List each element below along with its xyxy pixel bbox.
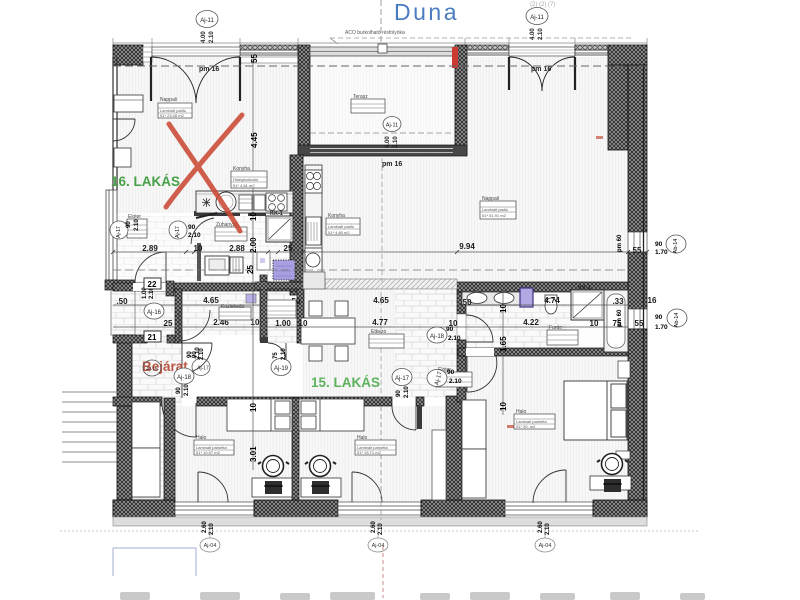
svg-text:2.10: 2.10 (393, 136, 399, 148)
svg-text:4.77: 4.77 (372, 318, 388, 327)
svg-text:51* 51.91 m2: 51* 51.91 m2 (482, 213, 507, 218)
svg-text:Aj-18: Aj-18 (430, 334, 445, 340)
svg-text:55: 55 (250, 54, 259, 63)
svg-text:2.88: 2.88 (229, 244, 245, 253)
svg-text:Halo: Halo (516, 409, 527, 415)
svg-text:16: 16 (648, 296, 657, 305)
svg-text:2.10: 2.10 (545, 523, 551, 535)
svg-text:Aj-17: Aj-17 (395, 376, 410, 382)
svg-text:Halo: Halo (357, 435, 368, 441)
svg-text:Aj-18: Aj-18 (177, 375, 192, 381)
svg-text:51* 20. m2: 51* 20. m2 (516, 424, 536, 429)
svg-text:51* 4.61 m2: 51* 4.61 m2 (233, 183, 255, 188)
svg-text:Aj-04: Aj-04 (372, 543, 385, 549)
svg-text:90: 90 (447, 369, 455, 376)
svg-text:22: 22 (148, 280, 157, 289)
svg-text:Konyha: Konyha (233, 166, 250, 172)
svg-text:KK-1: KK-1 (270, 211, 283, 217)
svg-text:Nappali: Nappali (482, 196, 499, 202)
svg-text:2.10: 2.10 (378, 523, 384, 535)
svg-text:75: 75 (273, 352, 279, 359)
svg-text:2.89: 2.89 (142, 244, 158, 253)
svg-text:pm 16: pm 16 (531, 66, 551, 73)
svg-text:90: 90 (396, 390, 402, 397)
svg-text:2.10: 2.10 (134, 219, 140, 231)
svg-text:4.22: 4.22 (523, 318, 539, 327)
svg-text:pm 60: pm 60 (617, 309, 623, 327)
svg-text:2.10: 2.10 (404, 386, 410, 398)
svg-text:55: 55 (635, 319, 644, 328)
svg-text:10: 10 (194, 244, 203, 253)
svg-text:Aj-17: Aj-17 (197, 366, 209, 372)
svg-text:21: 21 (148, 333, 157, 342)
svg-text:Halo: Halo (196, 435, 207, 441)
svg-text:ACO burkolható résfolyóka: ACO burkolható résfolyóka (345, 30, 405, 36)
svg-text:Aj-04: Aj-04 (204, 543, 217, 549)
svg-text:4.65: 4.65 (203, 296, 219, 305)
svg-text:(2) (2) (7): (2) (2) (7) (530, 2, 555, 8)
svg-text:1.70: 1.70 (655, 324, 668, 331)
svg-text:10: 10 (249, 403, 258, 412)
svg-text:2.60: 2.60 (202, 521, 208, 533)
svg-text:4.45: 4.45 (250, 132, 259, 148)
svg-text:2.00: 2.00 (249, 237, 258, 253)
svg-text:1.00: 1.00 (275, 319, 291, 328)
svg-text:Aj-19: Aj-19 (274, 366, 289, 372)
svg-text:Nappali: Nappali (160, 97, 177, 103)
svg-text:Furdo: Furdo (549, 325, 562, 331)
svg-text:pm 60: pm 60 (617, 234, 623, 252)
svg-text:16. LAKÁS: 16. LAKÁS (111, 174, 180, 189)
svg-text:4.00: 4.00 (530, 28, 536, 40)
svg-text:25: 25 (284, 244, 293, 253)
svg-text:55: 55 (633, 246, 642, 255)
svg-text:4.00: 4.00 (385, 136, 391, 148)
svg-text:Hidegburkolat: Hidegburkolat (233, 177, 259, 182)
svg-text:2.10: 2.10 (188, 232, 201, 239)
svg-text:10: 10 (251, 318, 260, 327)
svg-text:.50: .50 (460, 298, 472, 307)
svg-text:Aj-16: Aj-16 (147, 310, 162, 316)
svg-text:Kozlekedo: Kozlekedo (221, 304, 245, 310)
svg-text:90: 90 (446, 326, 454, 333)
svg-text:10: 10 (299, 319, 308, 328)
svg-text:Aj-17: Aj-17 (175, 226, 181, 238)
svg-text:Terasz: Terasz (353, 94, 368, 100)
svg-text:2.10: 2.10 (184, 384, 190, 396)
svg-text:51* 10.97 m2: 51* 10.97 m2 (196, 450, 221, 455)
svg-text:1.70: 1.70 (655, 249, 668, 256)
svg-text:2.60: 2.60 (538, 521, 544, 533)
svg-text:51* 15.71 m2: 51* 15.71 m2 (357, 450, 382, 455)
svg-text:pm 16: pm 16 (199, 66, 219, 73)
svg-text:Aj-11: Aj-11 (200, 18, 214, 24)
svg-text:10: 10 (499, 304, 508, 313)
svg-text:90: 90 (655, 241, 663, 248)
svg-text:Aj-04: Aj-04 (539, 543, 552, 549)
svg-text:.33: .33 (612, 297, 624, 306)
svg-text:Duna: Duna (394, 0, 459, 25)
svg-text:pm 16: pm 16 (382, 161, 402, 168)
svg-text:4.00: 4.00 (201, 31, 207, 43)
svg-text:25: 25 (246, 265, 255, 274)
svg-text:Aj-11: Aj-11 (530, 15, 544, 21)
svg-text:3.01: 3.01 (249, 446, 258, 462)
svg-text:10: 10 (499, 402, 508, 411)
svg-text:10: 10 (590, 319, 599, 328)
svg-text:Laminalt padlo: Laminalt padlo (482, 207, 509, 212)
svg-text:2.10: 2.10 (199, 348, 205, 360)
svg-text:2.10: 2.10 (209, 523, 215, 535)
svg-text:.50: .50 (116, 297, 128, 306)
svg-text:2.10: 2.10 (538, 28, 544, 40)
svg-text:2.10: 2.10 (209, 31, 215, 43)
svg-text:90: 90 (188, 224, 196, 231)
svg-text:90: 90 (176, 387, 182, 394)
svg-text:4.74: 4.74 (544, 296, 560, 305)
svg-text:Aj-11: Aj-11 (386, 123, 398, 129)
svg-text:Ab-14: Ab-14 (674, 313, 680, 328)
svg-text:2.10: 2.10 (281, 348, 287, 360)
svg-text:90: 90 (126, 221, 132, 228)
svg-text:Aj-17: Aj-17 (116, 226, 122, 238)
svg-text:Etkezo: Etkezo (371, 329, 387, 335)
svg-text:90: 90 (655, 314, 663, 321)
svg-text:51* 23.08 m2: 51* 23.08 m2 (160, 113, 185, 118)
svg-text:Aj-15: Aj-15 (146, 367, 158, 373)
svg-text:Ab-14: Ab-14 (673, 239, 679, 254)
svg-text:4.65: 4.65 (373, 296, 389, 305)
svg-text:51* 4.80 m2: 51* 4.80 m2 (328, 230, 350, 235)
svg-text:10: 10 (249, 212, 258, 221)
svg-text:25: 25 (164, 319, 173, 328)
svg-text:2.10: 2.10 (449, 378, 462, 385)
svg-text:15. LAKÁS: 15. LAKÁS (311, 375, 380, 390)
svg-text:Laminalt padlo: Laminalt padlo (328, 224, 355, 229)
svg-text:9.94: 9.94 (459, 242, 475, 251)
svg-text:KK-1: KK-1 (578, 285, 591, 291)
svg-text:2.60: 2.60 (371, 521, 377, 533)
svg-text:Eloter: Eloter (128, 214, 141, 220)
svg-text:2.10: 2.10 (448, 335, 461, 342)
svg-text:90: 90 (192, 351, 198, 358)
svg-text:1.65: 1.65 (499, 336, 508, 352)
svg-text:Konyha: Konyha (328, 213, 345, 219)
